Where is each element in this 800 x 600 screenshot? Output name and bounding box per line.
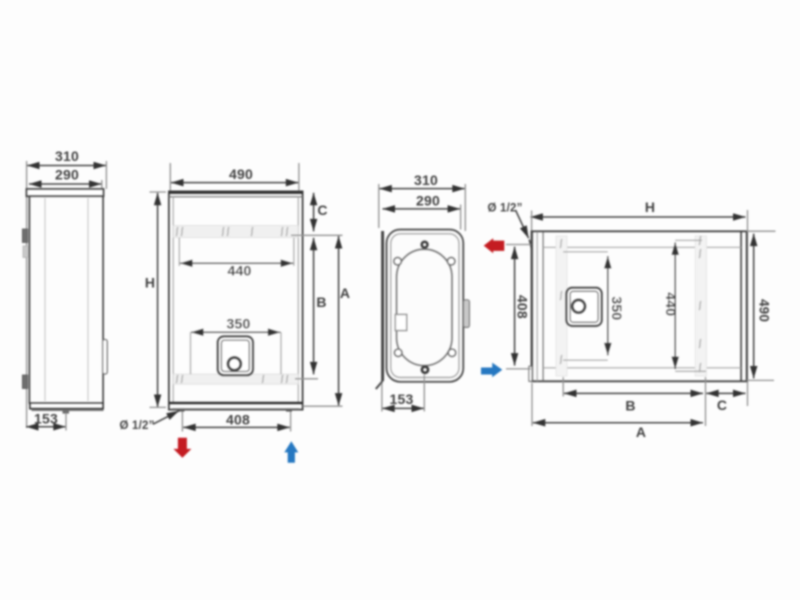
svg-text:B: B bbox=[625, 398, 635, 414]
svg-text:153: 153 bbox=[390, 391, 414, 407]
svg-text:310: 310 bbox=[55, 148, 79, 164]
svg-text:H: H bbox=[645, 199, 655, 215]
svg-text:Ø 1/2”: Ø 1/2” bbox=[119, 420, 154, 432]
svg-text:350: 350 bbox=[227, 316, 251, 332]
svg-text:A: A bbox=[340, 285, 350, 301]
svg-text:290: 290 bbox=[55, 167, 79, 183]
svg-text:490: 490 bbox=[757, 299, 772, 322]
svg-text:C: C bbox=[717, 397, 727, 413]
svg-text:290: 290 bbox=[416, 193, 440, 209]
svg-text:440: 440 bbox=[663, 292, 679, 316]
svg-text:B: B bbox=[316, 294, 326, 310]
svg-text:A: A bbox=[636, 424, 646, 440]
svg-text:C: C bbox=[317, 202, 327, 218]
svg-text:408: 408 bbox=[226, 412, 250, 428]
svg-text:H: H bbox=[145, 275, 155, 291]
svg-text:408: 408 bbox=[515, 295, 531, 319]
svg-text:440: 440 bbox=[228, 263, 252, 279]
svg-text:490: 490 bbox=[229, 166, 253, 182]
svg-text:153: 153 bbox=[34, 411, 58, 427]
svg-text:310: 310 bbox=[414, 172, 438, 188]
svg-text:350: 350 bbox=[609, 296, 625, 320]
